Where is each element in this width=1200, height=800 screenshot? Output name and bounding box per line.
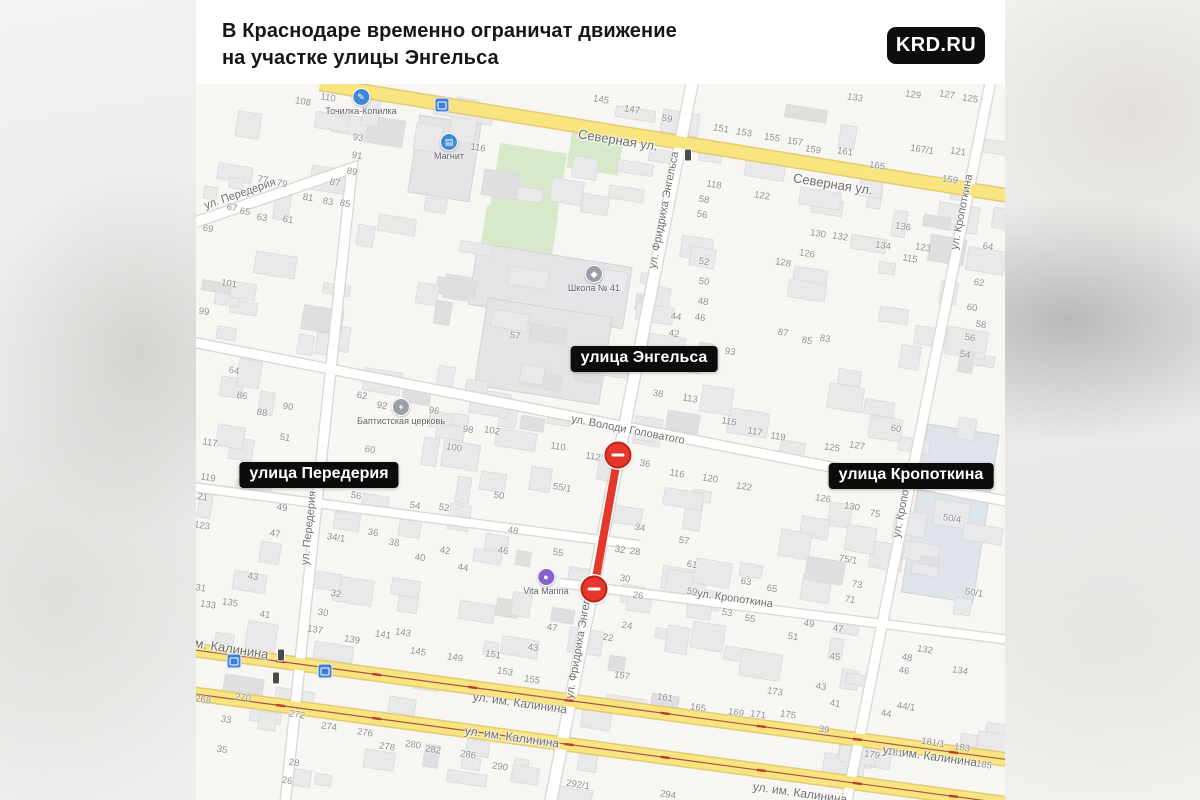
house-number: 127 (848, 439, 865, 452)
house-number: 64 (228, 365, 240, 378)
house-number: 171 (749, 708, 766, 721)
house-number: 113 (682, 392, 699, 405)
house-number: 60 (364, 444, 376, 457)
house-number: 147 (623, 103, 640, 116)
house-number: 274 (320, 720, 337, 733)
house-number: 126 (798, 247, 815, 260)
house-number: 115 (721, 415, 738, 428)
poi: ✎Точилка-Копилка (325, 88, 396, 117)
house-number: 123 (196, 519, 211, 532)
poi: +Баптистская церковь (357, 398, 445, 427)
house-number: 139 (343, 633, 360, 646)
street-callout: улица Кропоткина (829, 463, 994, 489)
house-number: 63 (256, 212, 268, 225)
house-number: 67 (226, 202, 238, 215)
traffic-light-icon (277, 649, 285, 662)
street-name-label: ул. им. Калинина (882, 742, 978, 769)
poi-label: Баптистская церковь (357, 417, 445, 427)
house-number: 77 (257, 174, 269, 187)
house-number: 30 (317, 607, 329, 620)
house-number: 50/1 (964, 586, 984, 600)
house-number: 44/1 (896, 700, 916, 714)
house-number: 69 (202, 223, 214, 236)
house-number: 50/4 (942, 512, 962, 526)
house-number: 65 (239, 206, 251, 219)
house-number: 85 (339, 198, 351, 211)
house-number: 125 (961, 92, 978, 105)
house-number: 60 (966, 302, 978, 315)
house-number: 50 (698, 276, 710, 289)
headline-line1: В Краснодаре временно ограничат движение (222, 18, 862, 45)
house-number: 59 (661, 113, 673, 126)
krd-logo-text: KRD.RU (896, 34, 976, 57)
street-name-label: ул. Кропоткина (949, 173, 975, 250)
house-number: 118 (706, 178, 723, 191)
house-number: 181 (886, 746, 903, 759)
house-number: 126 (814, 492, 831, 505)
house-number: 48 (901, 652, 913, 665)
house-number: 34 (634, 522, 646, 535)
house-number: 145 (592, 93, 609, 106)
house-number: 294 (659, 788, 676, 800)
house-number: 134 (951, 664, 968, 677)
house-number: 128 (774, 256, 791, 269)
house-number: 181/1 (920, 736, 945, 751)
krd-logo-badge: KRD.RU (887, 27, 985, 64)
house-number: 130 (843, 500, 860, 513)
house-number: 46 (694, 312, 706, 325)
house-number: 149 (446, 651, 463, 664)
house-number: 49 (276, 502, 288, 515)
house-number: 43 (815, 681, 827, 694)
street-name-label: ул. Передерия (299, 490, 319, 565)
poi-label: Школа № 41 (568, 284, 620, 294)
house-number: 61 (686, 559, 698, 572)
house-number: 30 (619, 573, 631, 586)
house-number: 117 (202, 436, 219, 449)
house-number: 40 (414, 552, 426, 565)
house-number: 121 (196, 490, 209, 503)
house-number: 24 (621, 620, 633, 633)
house-number: 88 (256, 407, 268, 420)
house-number: 26 (281, 775, 293, 788)
house-number: 26 (632, 590, 644, 603)
no-entry-icon (581, 576, 608, 603)
house-number: 143 (394, 626, 411, 639)
house-number: 58 (975, 319, 987, 332)
news-map-graphic: В Краснодаре временно ограничат движение… (0, 0, 1200, 800)
house-number: 110 (320, 91, 337, 104)
house-number: 47 (546, 622, 558, 635)
street-name-label: Северная ул. (792, 170, 874, 197)
house-number: 119 (200, 471, 217, 484)
bus-stop-icon (435, 98, 450, 113)
house-number: 130 (809, 227, 826, 240)
house-number: 54 (409, 500, 421, 513)
house-number: 53 (721, 607, 733, 620)
house-number: 32 (614, 544, 626, 557)
house-number: 49 (803, 618, 815, 631)
house-number: 136 (894, 220, 911, 233)
house-number: 157 (613, 669, 630, 682)
house-number: 102 (483, 424, 500, 437)
street-name-label: ул. Фридриха Энгельса (647, 150, 681, 269)
street-name-label: ул. Передерия (203, 176, 277, 212)
house-number: 161 (836, 145, 853, 158)
house-number: 270 (234, 691, 251, 704)
house-number: 79 (276, 178, 288, 191)
house-number: 71 (844, 594, 856, 607)
house-number: 133 (846, 91, 863, 104)
house-number: 134 (874, 239, 891, 252)
street-name-label: ул. Кропоткина (891, 461, 917, 538)
headline: В Краснодаре временно ограничат движение… (222, 18, 862, 72)
house-number: 159 (941, 173, 958, 186)
house-number: 122 (753, 189, 770, 202)
house-number: 123 (914, 241, 931, 254)
house-number: 52 (698, 256, 710, 269)
house-number: 93 (724, 346, 736, 359)
house-number: 121 (949, 145, 966, 158)
bus-stop-icon (318, 664, 333, 679)
house-number: 282 (424, 743, 441, 756)
house-number: 51 (279, 432, 291, 445)
house-number: 157 (786, 135, 803, 148)
house-number: 89 (346, 166, 358, 179)
house-number: 56 (696, 209, 708, 222)
house-number: 41 (829, 698, 841, 711)
house-number: 52 (438, 502, 450, 515)
house-number: 81 (302, 192, 314, 205)
house-number: 99 (198, 306, 210, 319)
house-number: 46 (497, 545, 509, 558)
house-number: 28 (288, 757, 300, 770)
house-number: 137 (306, 623, 323, 636)
house-number: 56 (964, 332, 976, 345)
map-image: Северная ул.Северная ул.ул. Володи Голов… (196, 84, 1005, 800)
house-number: 85 (801, 335, 813, 348)
house-number: 108 (294, 95, 311, 108)
poi-icon: ✎ (352, 88, 370, 106)
house-number: 169 (727, 706, 744, 719)
house-number: 54 (959, 349, 971, 362)
house-number: 35 (216, 744, 228, 757)
house-number: 116 (470, 141, 487, 154)
house-number: 117 (747, 425, 764, 438)
house-number: 119 (770, 430, 787, 443)
poi-label: Точилка-Копилка (325, 107, 396, 117)
house-number: 55/1 (552, 481, 572, 495)
house-number: 268 (196, 693, 212, 706)
house-number: 48 (697, 296, 709, 309)
poi-icon: ◆ (585, 265, 603, 283)
house-number: 272 (288, 708, 305, 721)
house-number: 64 (982, 241, 994, 254)
house-number: 278 (378, 740, 395, 753)
poi: ●Vita Marina (523, 568, 568, 597)
house-number: 131 (196, 581, 207, 594)
headline-line2: на участке улицы Энгельса (222, 45, 862, 72)
house-number: 28 (629, 546, 641, 559)
poi-icon: ● (537, 568, 555, 586)
traffic-light-icon (272, 672, 280, 685)
house-number: 41 (259, 609, 271, 622)
blur-right-strip (1005, 0, 1200, 800)
poi-icon: + (392, 398, 410, 416)
house-number: 33 (220, 714, 232, 727)
house-number: 86 (236, 390, 248, 403)
house-number: 75/1 (838, 553, 858, 567)
house-number: 96 (428, 405, 440, 418)
house-number: 38 (388, 537, 400, 550)
house-number: 62 (973, 277, 985, 290)
house-number: 280 (404, 738, 421, 751)
street-name-label: ул. Фридриха Энгельса (564, 580, 596, 699)
house-number: 120 (701, 472, 718, 485)
house-number: 73 (851, 579, 863, 592)
house-number: 65 (766, 583, 778, 596)
house-number: 83 (322, 196, 334, 209)
house-number: 155 (523, 673, 540, 686)
house-number: 56 (350, 490, 362, 503)
house-number: 116 (669, 467, 686, 480)
house-number: 161 (656, 691, 673, 704)
house-number: 135 (221, 596, 238, 609)
house-number: 115 (902, 252, 919, 265)
house-number: 62 (356, 390, 368, 403)
house-number: 63 (740, 576, 752, 589)
house-number: 141 (374, 628, 391, 641)
house-number: 100 (445, 441, 462, 454)
house-number: 276 (356, 726, 373, 739)
house-number: 129 (904, 88, 921, 101)
street-callout: улица Передерия (239, 462, 398, 488)
poi: ◆Школа № 41 (568, 265, 620, 294)
house-number: 90 (282, 401, 294, 414)
house-number: 43 (247, 571, 259, 584)
house-number: 50 (493, 490, 505, 503)
house-number: 34/1 (326, 531, 346, 545)
house-number: 44 (457, 562, 469, 575)
house-number: 145 (409, 645, 426, 658)
house-number: 58 (698, 194, 710, 207)
house-number: 159 (804, 143, 821, 156)
house-number: 60 (890, 423, 902, 436)
house-number: 87 (777, 327, 789, 340)
house-number: 133 (199, 598, 216, 611)
blur-left-strip (0, 0, 196, 800)
house-number: 175 (779, 708, 796, 721)
house-number: 59 (686, 586, 698, 599)
house-number: 32 (330, 588, 342, 601)
house-number: 155 (763, 131, 780, 144)
house-number: 153 (735, 126, 752, 139)
map-labels-layer: Северная ул.Северная ул.ул. Володи Голов… (196, 84, 1005, 800)
house-number: 98 (462, 424, 474, 437)
house-number: 125 (823, 441, 840, 454)
street-callout: улица Энгельса (571, 346, 718, 372)
street-name-label: ул. им. Калинина (752, 779, 848, 800)
street-name-label: ул. им. Калинина (472, 689, 568, 716)
house-number: 185 (975, 758, 992, 771)
house-number: 173 (766, 685, 783, 698)
poi-label: Магнит (434, 152, 464, 162)
house-number: 165 (689, 701, 706, 714)
house-number: 44 (880, 708, 892, 721)
house-number: 122 (735, 480, 752, 493)
house-number: 179 (863, 748, 880, 761)
house-number: 55 (744, 613, 756, 626)
house-number: 165 (868, 159, 885, 172)
house-number: 87 (329, 177, 341, 190)
house-number: 48 (507, 525, 519, 538)
house-number: 22 (602, 632, 614, 645)
house-number: 38 (652, 388, 664, 401)
house-number: 92 (376, 400, 388, 413)
street-name-label: Северная ул. (577, 126, 659, 153)
house-number: 93 (352, 132, 364, 145)
house-number: 47 (269, 528, 281, 541)
house-number: 91 (351, 150, 363, 163)
street-name-label: ул. Володи Головатого (570, 413, 685, 447)
house-number: 36 (367, 527, 379, 540)
house-number: 153 (496, 665, 513, 678)
house-number: 45 (829, 651, 841, 664)
house-number: 44 (670, 311, 682, 324)
street-name-label: ул. Кропоткина (696, 588, 773, 611)
house-number: 43 (527, 642, 539, 655)
house-number: 57 (509, 330, 521, 343)
house-number: 167/1 (909, 143, 934, 158)
house-number: 47 (832, 623, 844, 636)
poi: ▤Магнит (434, 133, 464, 162)
street-name-label: ул. им. Калинина (464, 723, 560, 750)
house-number: 46 (898, 665, 910, 678)
house-number: 83 (819, 333, 831, 346)
house-number: 42 (439, 545, 451, 558)
no-entry-icon (605, 442, 632, 469)
house-number: 151 (484, 648, 501, 661)
house-number: 51 (787, 631, 799, 644)
house-number: 127 (938, 88, 955, 101)
house-number: 151 (712, 122, 729, 135)
house-number: 101 (220, 277, 237, 290)
house-number: 75 (869, 508, 881, 521)
house-number: 132 (916, 643, 933, 656)
traffic-light-icon (684, 149, 692, 162)
bus-stop-icon (227, 654, 242, 669)
house-number: 112 (585, 450, 602, 463)
house-number: 292/1 (565, 778, 590, 793)
poi-icon: ▤ (440, 133, 458, 151)
house-number: 183 (953, 741, 970, 754)
house-number: 55 (552, 547, 564, 560)
house-number: 61 (282, 214, 294, 227)
house-number: 286 (459, 748, 476, 761)
house-number: 290 (491, 760, 508, 773)
house-number: 42 (668, 328, 680, 341)
house-number: 57 (678, 535, 690, 548)
street-name-label: им. Калинина (196, 634, 270, 662)
house-number: 36 (639, 458, 651, 471)
house-number: 110 (550, 440, 567, 453)
house-number: 39 (818, 724, 830, 737)
poi-label: Vita Marina (523, 587, 568, 597)
house-number: 132 (831, 230, 848, 243)
